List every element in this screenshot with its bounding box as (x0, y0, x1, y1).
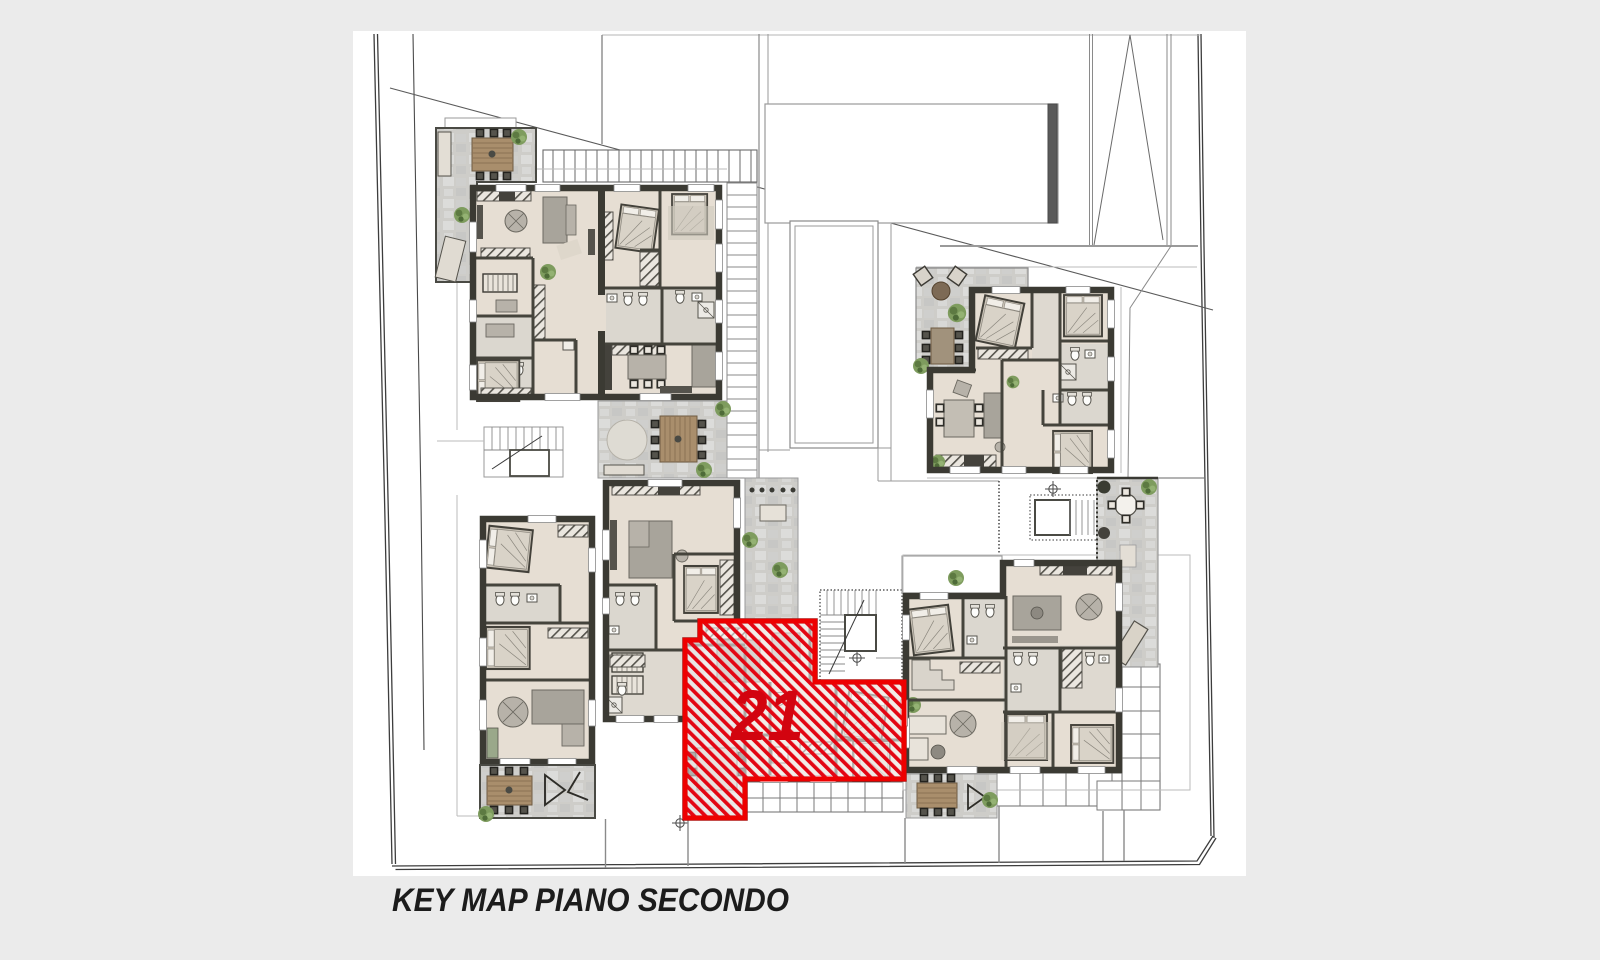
svg-text:21: 21 (729, 677, 804, 756)
svg-text:KEY MAP PIANO SECONDO: KEY MAP PIANO SECONDO (392, 882, 789, 918)
